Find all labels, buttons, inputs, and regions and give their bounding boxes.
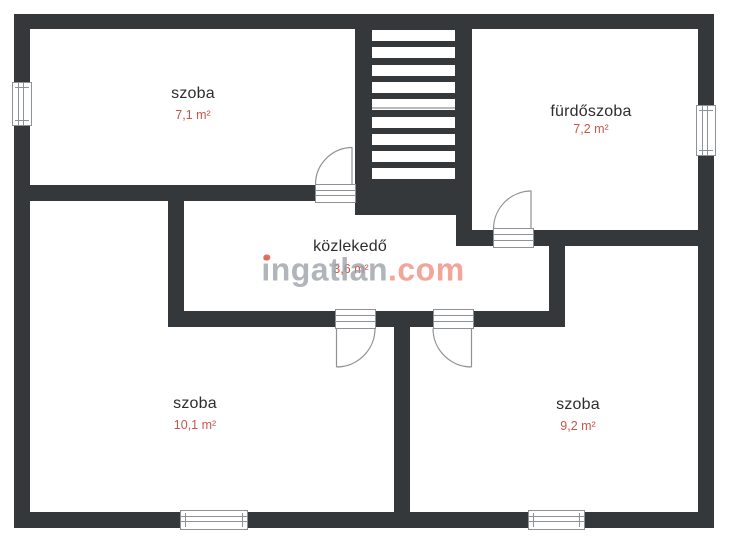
room-area-szoba-1: 7,1 m² [175,108,210,122]
room-label-szoba-1: szoba [171,85,215,103]
room-area-szoba-3: 9,2 m² [560,419,595,433]
door-arc-room1 [316,148,353,185]
watermark-tld-text: .com [388,252,465,288]
door-arc-room-left [337,329,376,368]
watermark-brand-text: ingatlan [261,252,388,288]
room-area-furdoszoba: 7,2 m² [573,122,608,136]
room-label-szoba-3: szoba [556,396,600,414]
door-arc-room-right [433,329,472,368]
room-label-szoba-2: szoba [173,395,217,413]
room-label-furdoszoba: fürdőszoba [550,103,631,121]
floor-plan: szoba 7,1 m² fürdőszoba 7,2 m² közlekedő… [0,0,730,541]
watermark-i-dot [263,254,270,261]
room-area-szoba-2: 10,1 m² [174,418,216,432]
watermark: ingatlan.com [261,252,464,289]
door-arc-bathroom [494,191,532,229]
